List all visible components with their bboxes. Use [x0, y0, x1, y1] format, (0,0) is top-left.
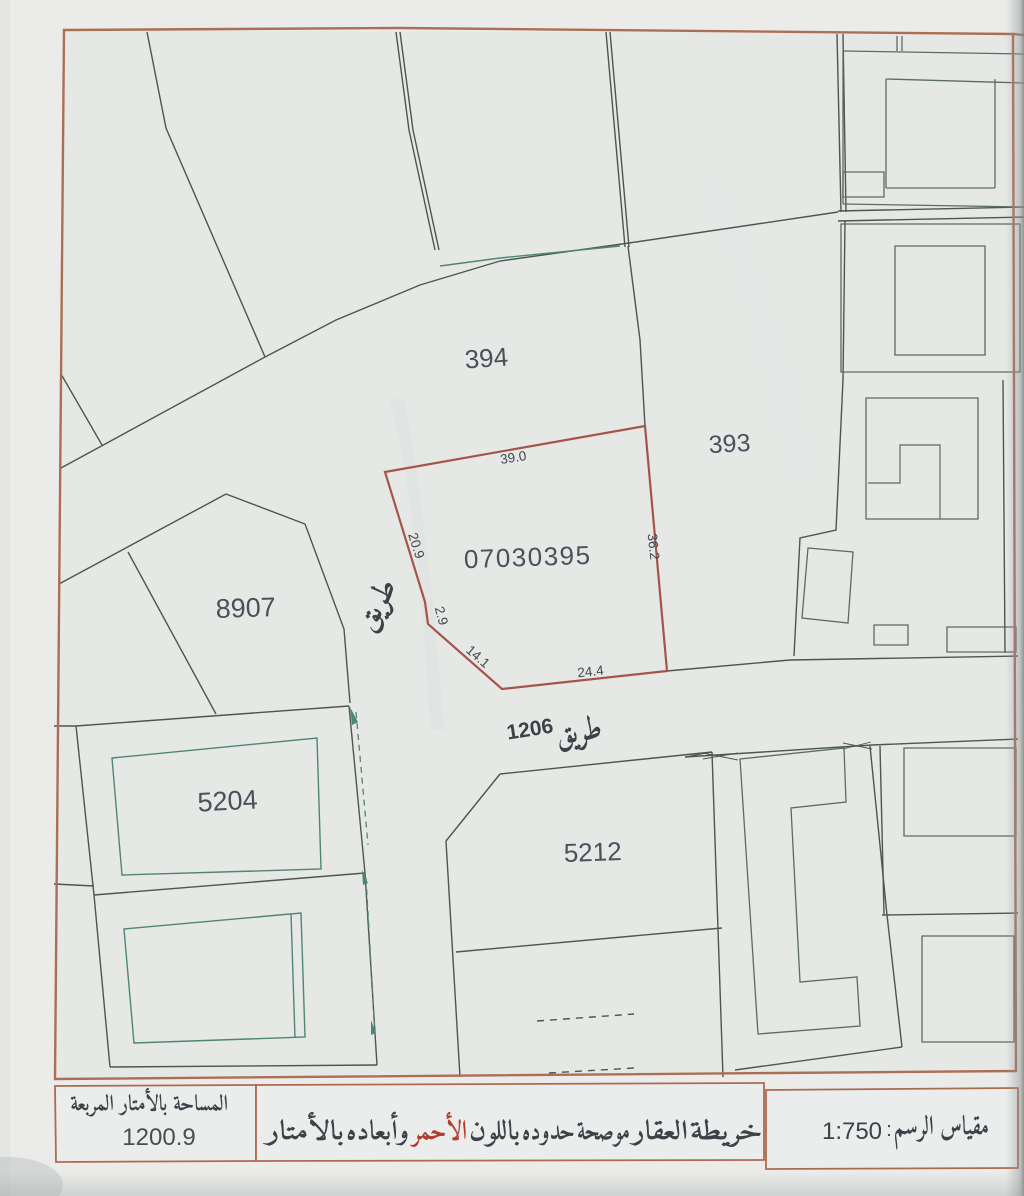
svg-text:394: 394: [464, 342, 509, 375]
svg-text:24.4: 24.4: [577, 663, 605, 681]
svg-text::: :: [886, 1119, 892, 1141]
svg-text:07030395: 07030395: [463, 540, 592, 574]
svg-text:36.2: 36.2: [645, 533, 663, 561]
svg-text:393: 393: [708, 429, 751, 459]
svg-text:1200.9: 1200.9: [122, 1124, 195, 1151]
svg-text:1:750: 1:750: [822, 1118, 882, 1145]
svg-text:5212: 5212: [563, 836, 622, 868]
svg-text:8907: 8907: [215, 592, 276, 624]
svg-text:5204: 5204: [197, 784, 259, 817]
